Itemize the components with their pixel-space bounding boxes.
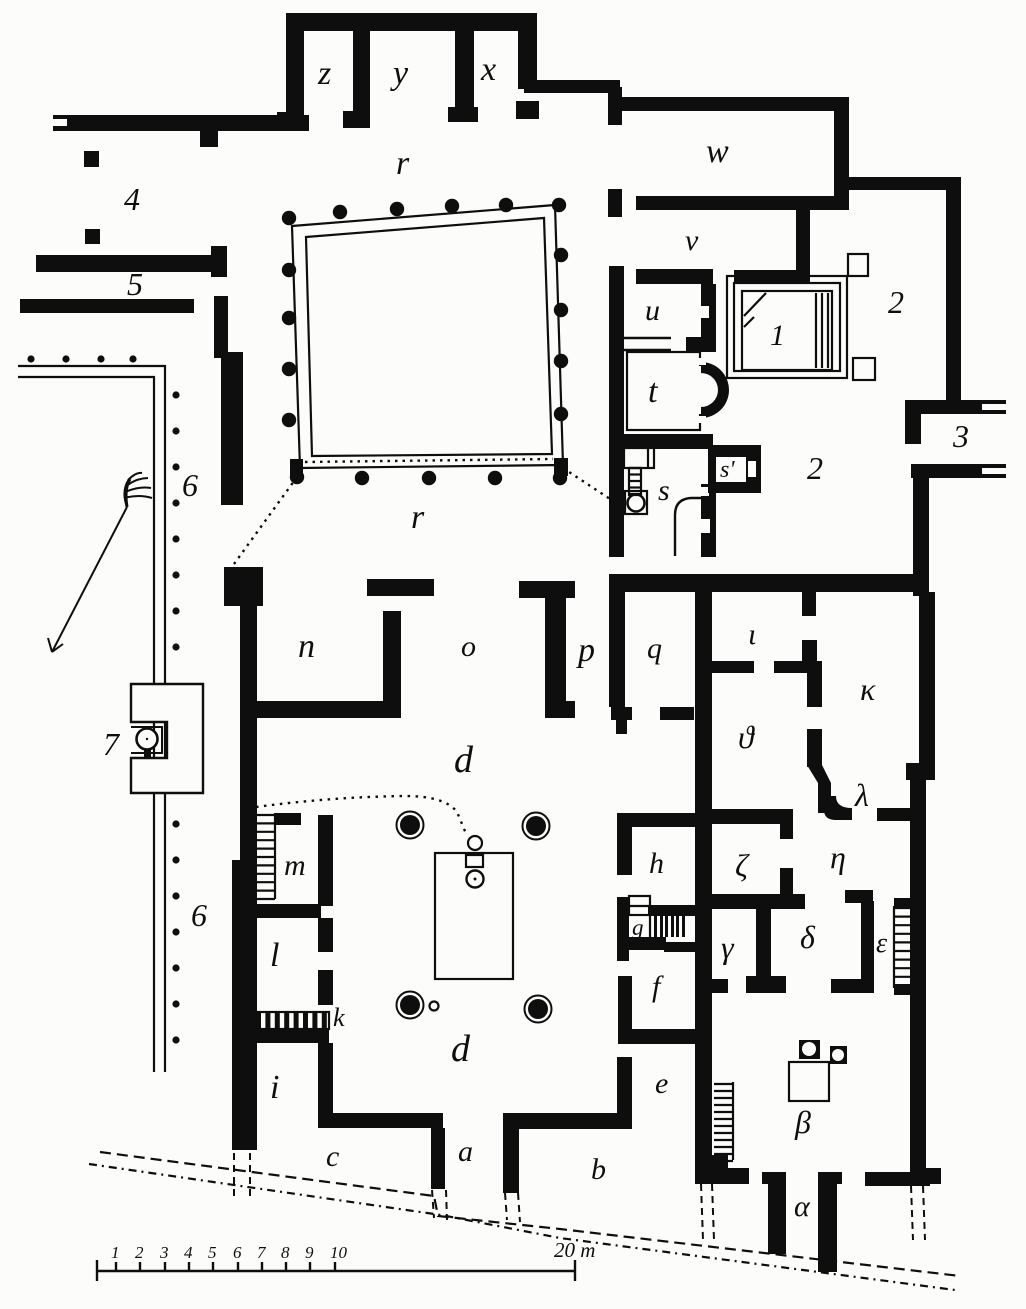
svg-text:2: 2: [807, 450, 823, 486]
svg-text:t: t: [648, 373, 659, 410]
svg-text:u: u: [645, 294, 660, 327]
svg-text:4: 4: [124, 181, 140, 217]
svg-text:v: v: [685, 224, 699, 257]
svg-text:6: 6: [233, 1243, 242, 1262]
svg-text:ϑ: ϑ: [738, 719, 756, 755]
svg-text:p: p: [576, 632, 595, 669]
svg-text:a: a: [458, 1135, 473, 1168]
svg-text:λ: λ: [854, 777, 869, 813]
svg-text:5: 5: [208, 1243, 217, 1262]
svg-text:y: y: [390, 55, 409, 92]
svg-text:s': s': [720, 457, 735, 483]
svg-text:b: b: [591, 1153, 606, 1186]
svg-text:d: d: [454, 739, 474, 781]
svg-text:8: 8: [281, 1243, 290, 1262]
svg-text:η: η: [830, 839, 846, 875]
svg-text:i: i: [270, 1069, 279, 1106]
svg-text:l: l: [270, 937, 279, 974]
svg-text:m: m: [284, 849, 306, 882]
svg-text:ζ: ζ: [735, 847, 750, 883]
svg-text:ι: ι: [748, 618, 756, 651]
svg-text:ε: ε: [876, 928, 887, 959]
svg-text:e: e: [655, 1067, 668, 1100]
svg-text:α: α: [794, 1190, 811, 1223]
svg-text:o: o: [461, 630, 476, 663]
svg-text:1: 1: [111, 1243, 120, 1262]
svg-text:h: h: [649, 847, 664, 880]
svg-text:q: q: [647, 632, 662, 665]
svg-text:4: 4: [184, 1243, 193, 1262]
svg-text:r: r: [411, 499, 425, 536]
svg-text:κ: κ: [860, 671, 876, 707]
svg-text:6: 6: [191, 897, 207, 933]
svg-text:3: 3: [952, 418, 969, 454]
svg-text:7: 7: [103, 726, 121, 762]
svg-text:r: r: [396, 145, 410, 182]
svg-text:w: w: [706, 133, 729, 170]
svg-text:δ: δ: [800, 919, 816, 955]
svg-text:n: n: [298, 628, 315, 665]
svg-text:5: 5: [127, 266, 143, 302]
svg-text:1: 1: [770, 319, 785, 352]
svg-text:γ: γ: [721, 929, 735, 965]
svg-text:d: d: [451, 1028, 471, 1070]
svg-text:k: k: [333, 1003, 345, 1032]
svg-text:g: g: [632, 915, 644, 940]
svg-text:β: β: [794, 1104, 811, 1140]
svg-text:6: 6: [182, 467, 198, 503]
svg-text:s: s: [658, 474, 670, 507]
svg-text:20 m: 20 m: [554, 1238, 595, 1262]
svg-text:10: 10: [330, 1243, 348, 1262]
svg-text:z: z: [317, 55, 331, 92]
svg-text:2: 2: [888, 284, 904, 320]
svg-text:c: c: [326, 1140, 339, 1173]
svg-text:9: 9: [305, 1243, 314, 1262]
svg-text:3: 3: [159, 1243, 169, 1262]
svg-text:2: 2: [135, 1243, 144, 1262]
svg-text:x: x: [480, 51, 496, 88]
